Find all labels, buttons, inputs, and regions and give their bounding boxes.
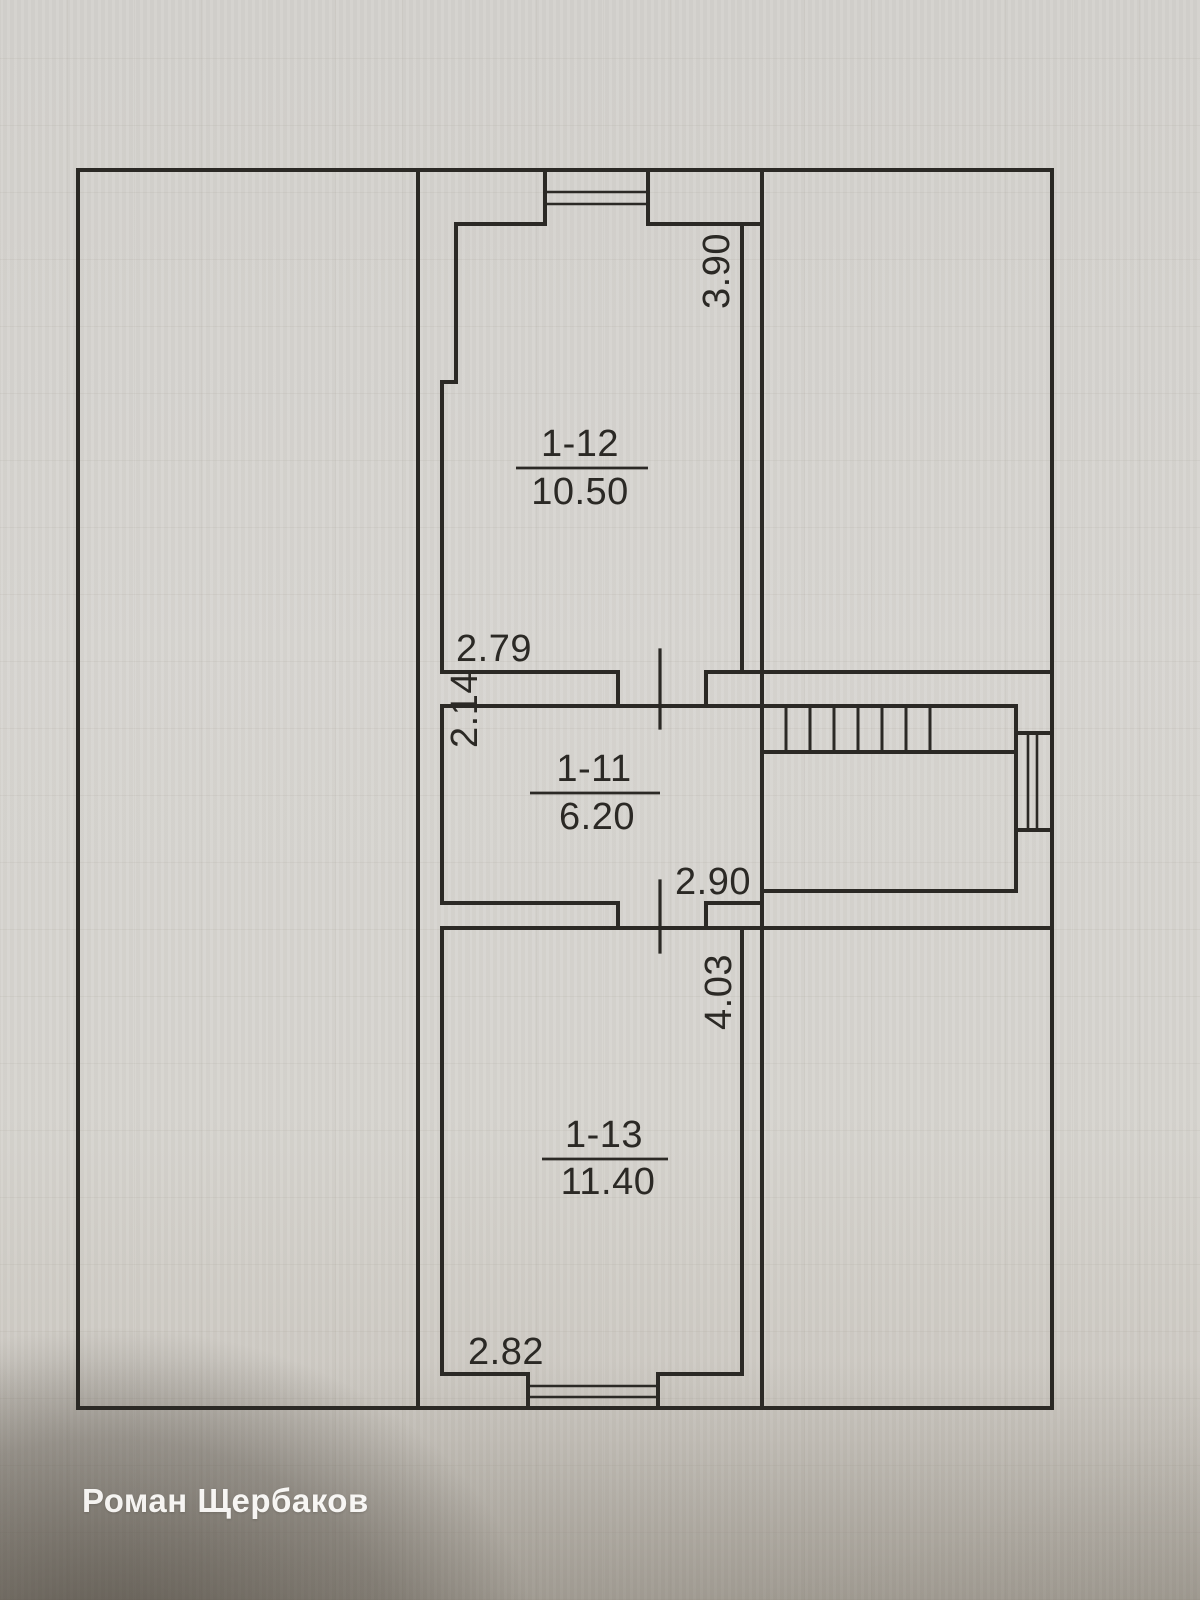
room-1-11-label: 1-11 6.20 xyxy=(530,748,660,838)
dim-1-11-width: 2.90 xyxy=(675,861,751,903)
room-1-13-label: 1-13 11.40 xyxy=(542,1114,668,1203)
room-1-11-area: 6.20 xyxy=(559,796,635,838)
interior-walls xyxy=(418,170,1052,1408)
watermark: Роман Щербаков xyxy=(82,1482,369,1520)
room-1-12-label: 1-12 10.50 xyxy=(516,423,648,513)
room-1-13-id: 1-13 xyxy=(565,1114,643,1156)
stair-treads xyxy=(786,706,930,752)
dim-1-12-height: 3.90 xyxy=(696,233,738,309)
floor-plan-photo: 1-12 10.50 3.90 2.79 1-11 6.20 2.14 2.90… xyxy=(0,0,1200,1600)
window-bottom xyxy=(528,1374,658,1408)
dim-1-13-height: 4.03 xyxy=(698,954,740,1030)
window-top xyxy=(545,170,648,224)
dim-1-11-height: 2.14 xyxy=(444,672,486,748)
room-1-12-area: 10.50 xyxy=(531,471,629,513)
staircase xyxy=(762,706,1016,891)
dim-1-13-width: 2.82 xyxy=(468,1331,544,1373)
room-1-11-id: 1-11 xyxy=(556,748,631,790)
room-1-12-id: 1-12 xyxy=(541,423,619,465)
room-1-13-area: 11.40 xyxy=(561,1161,656,1203)
window-right xyxy=(1016,733,1052,830)
dim-1-12-width: 2.79 xyxy=(456,628,532,670)
floor-plan-drawing: 1-12 10.50 3.90 2.79 1-11 6.20 2.14 2.90… xyxy=(0,0,1200,1600)
